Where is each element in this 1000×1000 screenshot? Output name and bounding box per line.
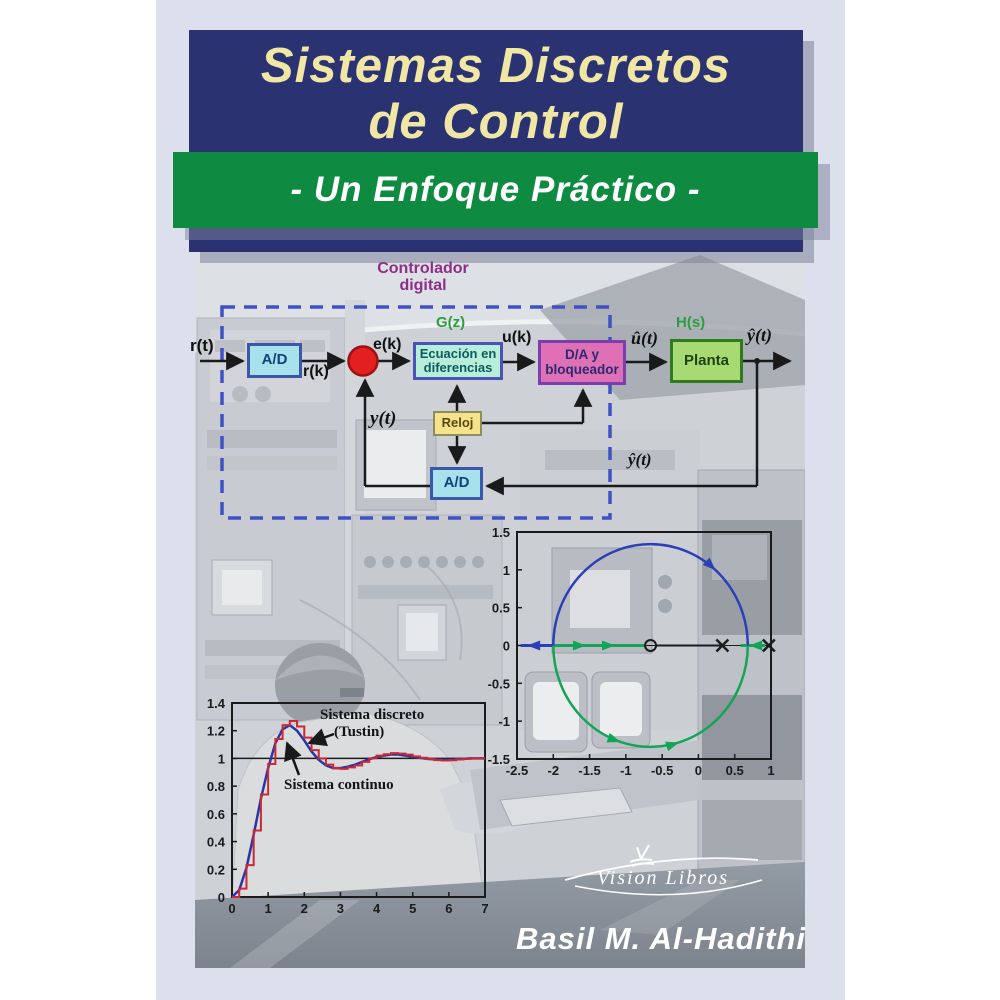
block-ad-feedback-label: A/D: [444, 475, 470, 492]
signal-yt: y(t): [370, 408, 396, 430]
annotation-tustin: (Tustin): [334, 724, 384, 741]
title-line2: de Control: [369, 94, 624, 150]
book-cover-image: 00.20.40.60.811.21.4012345671.510.50-0.5…: [0, 0, 1000, 1000]
diagram-caption-line2: digital: [353, 278, 493, 295]
author-name: Basil M. Al-Hadithi: [470, 921, 806, 957]
block-clock-label: Reloj: [442, 416, 474, 430]
block-plant-label: Planta: [684, 353, 729, 370]
subtitle-banner: - Un Enfoque Práctico -: [173, 152, 818, 228]
block-difference-equation: Ecuación en diferencias: [413, 342, 503, 380]
block-ad-input-label: A/D: [262, 352, 288, 369]
block-da-label1: D/A y: [565, 348, 599, 363]
block-da-holder: D/A y bloqueador: [538, 340, 626, 385]
signal-rt: r(t): [190, 336, 214, 356]
annotation-sistema-discreto: Sistema discreto: [320, 707, 424, 724]
annotation-sistema-continuo: Sistema continuo: [284, 777, 394, 794]
block-da-label2: bloqueador: [545, 363, 619, 378]
title-line1: Sistemas Discretos: [261, 38, 731, 94]
block-clock: Reloj: [433, 411, 482, 436]
diagram-caption-line1: Controlador: [353, 261, 493, 278]
signal-hs: H(s): [676, 314, 705, 331]
block-plant: Planta: [670, 339, 743, 383]
signal-yhat-feedback: ŷ(t): [628, 450, 652, 470]
signal-uhat: û(t): [631, 328, 658, 349]
signal-uk: u(k): [502, 329, 531, 347]
diagram-caption: Controlador digital: [353, 261, 493, 295]
signal-rk: r(k): [303, 363, 329, 381]
signal-ek: e(k): [373, 336, 401, 354]
signal-gz: G(z): [436, 314, 465, 331]
signal-yhat-out: ŷ(t): [747, 325, 772, 346]
block-eq-label1: Ecuación en: [420, 347, 497, 361]
block-ad-feedback: A/D: [430, 467, 483, 500]
block-eq-label2: diferencias: [424, 361, 493, 375]
subtitle-text: - Un Enfoque Práctico -: [291, 170, 701, 210]
block-ad-input: A/D: [247, 343, 302, 378]
